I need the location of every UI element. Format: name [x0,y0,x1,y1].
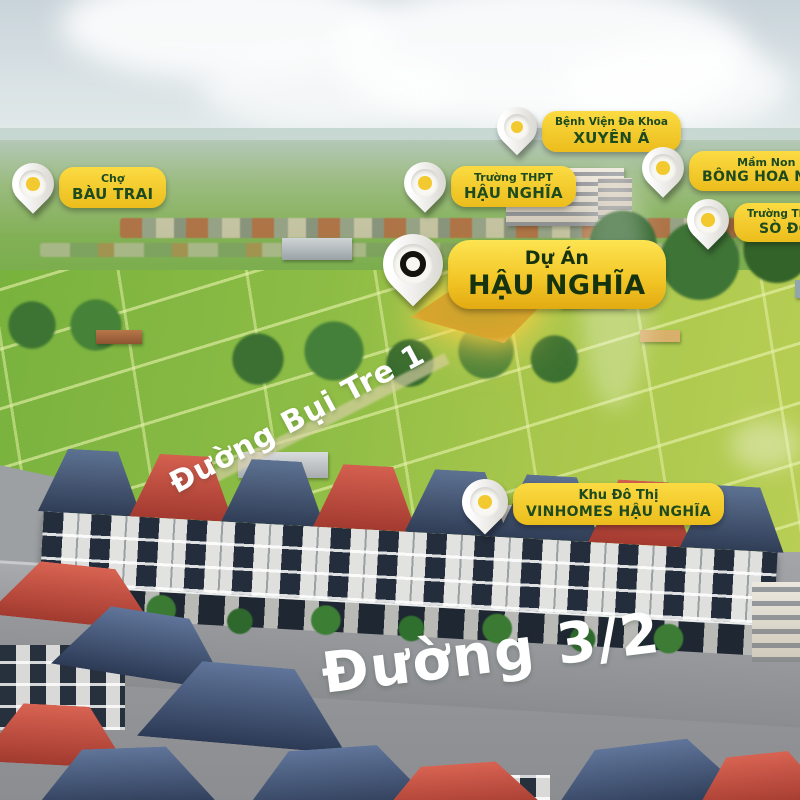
location-pin-icon [642,147,684,189]
project-label: Dự Án HẬU NGHĨA [448,240,666,309]
map-pin-du-an-hau-nghia[interactable]: Dự Án HẬU NGHĨA [383,234,666,309]
white-building [752,582,800,662]
map-pin-khu-do-thi-vinhomes[interactable]: Khu Đô Thị VINHOMES HẬU NGHĨA [462,479,724,525]
pin-label-line2: VINHOMES HẬU NGHĨA [526,504,711,521]
pin-label: Mầm Non BÔNG HOA NHỎ [689,151,800,191]
pin-label: Khu Đô Thị VINHOMES HẬU NGHĨA [513,483,724,525]
pin-dot [418,176,431,189]
pin-label-line1: Dự Án [525,247,589,270]
pin-label-line2: HẬU NGHĨA [464,184,563,202]
farm-shed [96,330,142,344]
pin-label-line1: Bệnh Viện Đa Khoa [555,116,668,129]
location-pin-icon [12,163,54,205]
pin-label: Trường THPT HẬU NGHĨA [451,166,576,207]
pin-label-line2: BÀU TRAI [72,185,153,203]
pin-label-line2: BÔNG HOA NHỎ [702,169,800,186]
farm-shed [795,280,800,298]
aerial-map-scene: Đường Bụi Tre 1 Đường 3/2 Chợ BÀU TRAI B… [0,0,800,800]
roof-segment [313,463,420,533]
pin-dot [701,213,714,226]
location-pin-icon [497,107,537,147]
trees [0,290,160,360]
location-pin-icon [687,199,729,241]
pin-label: Chợ BÀU TRAI [59,167,166,208]
map-pin-truong-thpt-hau-nghia[interactable]: Trường THPT HẬU NGHĨA [404,162,576,207]
location-pin-icon [462,479,508,525]
pin-label-line2: HẬU NGHĨA [468,270,646,302]
location-pin-icon [404,162,446,204]
map-pin-truong-thcs-so-do[interactable]: Trường THCS SÒ ĐO [687,199,800,242]
pin-label-line1: Trường THPT [474,171,553,184]
smoke-plume [730,420,800,470]
pin-label-line1: Mầm Non [737,156,795,169]
map-pin-cho-bau-trai[interactable]: Chợ BÀU TRAI [12,163,166,208]
map-pin-benh-vien-xuyen-a[interactable]: Bệnh Viện Đa Khoa XUYÊN Á [497,107,681,152]
pin-dot [26,177,39,190]
map-pin-mam-non-bong-hoa-nho[interactable]: Mầm Non BÔNG HOA NHỎ [642,147,800,191]
pin-label-line2: XUYÊN Á [573,129,649,147]
roof-segment [38,447,145,517]
location-pin-icon-main [383,234,443,294]
pin-label: Bệnh Viện Đa Khoa XUYÊN Á [542,111,681,152]
cloud [200,50,460,130]
pin-label-line1: Khu Đô Thị [578,488,658,504]
pin-label-line1: Trường THCS [747,208,800,221]
pin-dot [656,161,669,174]
pin-label-line1: Chợ [101,172,124,185]
pin-label-line2: SÒ ĐO [759,221,800,238]
farm-shed [282,238,352,260]
pin-label: Trường THCS SÒ ĐO [734,203,800,242]
